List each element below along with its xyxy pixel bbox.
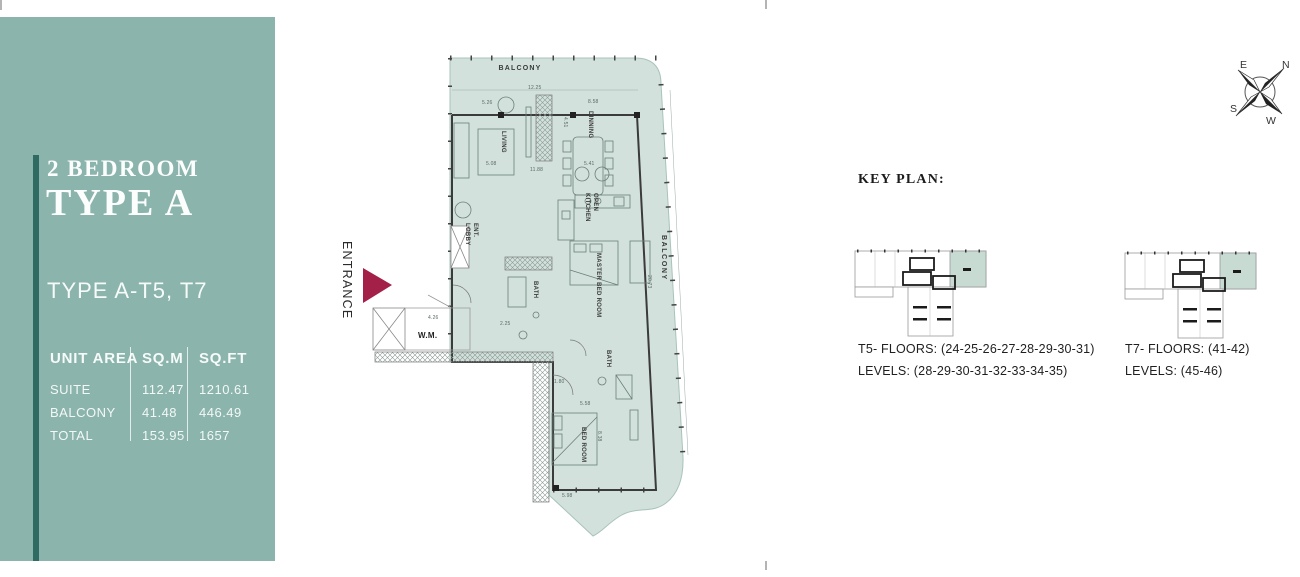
- dim-label: 4.26: [428, 315, 439, 321]
- row-total-sqft: 1657: [199, 428, 230, 443]
- room-label-ent-lobby: ENT. LOBBY: [463, 223, 478, 246]
- key-plan-heading: KEY PLAN:: [858, 172, 945, 188]
- room-label-bath-2: BATH: [604, 350, 612, 367]
- unit-title-line1: 2 BEDROOM: [47, 156, 199, 182]
- dim-label: 4.51: [562, 117, 568, 128]
- compass-s: S: [1230, 103, 1237, 115]
- dim-label: 12.25: [528, 85, 542, 91]
- compass-n: N: [1282, 59, 1290, 71]
- row-suite-sqm: 112.47: [142, 382, 184, 397]
- row-total-label: TOTAL: [50, 428, 93, 443]
- t5-floors-text: T5- FLOORS: (24-25-26-27-28-29-30-31): [858, 342, 1095, 356]
- balcony-top-label: BALCONY: [480, 65, 560, 74]
- room-label-living: LIVING: [499, 131, 507, 153]
- fold-mark-left: [0, 0, 2, 10]
- room-label-bath-1: BATH: [531, 281, 539, 298]
- sidebar-accent-stripe: [33, 155, 39, 561]
- fold-mark-bottom: [765, 561, 767, 570]
- dim-label: 8.58: [588, 99, 599, 105]
- compass-w: W: [1266, 115, 1276, 127]
- entrance-arrow: [363, 268, 392, 303]
- dim-label: 1.80: [554, 379, 565, 385]
- room-label-open-kitchen: OPEN KITCHEN: [583, 193, 598, 222]
- row-balcony-sqft: 446.49: [199, 405, 242, 420]
- row-balcony-sqm: 41.48: [142, 405, 177, 420]
- table-divider: [187, 347, 188, 441]
- t7-levels-text: LEVELS: (45-46): [1125, 364, 1223, 378]
- unit-title-line2: TYPE A: [46, 181, 194, 225]
- table-header-unit-area: UNIT AREA: [50, 350, 138, 367]
- table-divider: [130, 347, 131, 441]
- key-plan-t5-drawing: [853, 238, 993, 340]
- dim-label: 5.58: [580, 401, 591, 407]
- key-plan-t7: [1123, 240, 1263, 342]
- balcony-right-label: BALCONY: [658, 235, 667, 281]
- unit-subtitle: TYPE A-T5, T7: [47, 278, 208, 304]
- key-plan-t7-drawing: [1123, 240, 1263, 342]
- sidebar-panel: 2 BEDROOM TYPE A TYPE A-T5, T7 UNIT AREA…: [0, 17, 275, 561]
- dim-label: 20.73: [646, 275, 652, 289]
- row-balcony-label: BALCONY: [50, 405, 116, 420]
- dim-label: 5.08: [486, 161, 497, 167]
- room-label-bed-room: BED ROOM: [579, 427, 587, 462]
- dim-label: 5.26: [482, 100, 493, 106]
- dim-label: 11.88: [530, 167, 543, 173]
- dim-label: 5.41: [584, 161, 595, 167]
- table-header-sqm: SQ.M: [142, 350, 184, 367]
- t7-floors-text: T7- FLOORS: (41-42): [1125, 342, 1250, 356]
- row-total-sqm: 153.95: [142, 428, 185, 443]
- fold-mark-top: [765, 0, 767, 9]
- dim-label: 2.25: [500, 321, 511, 327]
- key-plan-t5: [853, 238, 993, 340]
- row-suite-sqft: 1210.61: [199, 382, 250, 397]
- dim-label: 5.98: [562, 493, 573, 499]
- table-header-sqft: SQ.FT: [199, 350, 247, 367]
- wm-label: W.M.: [418, 331, 437, 340]
- floor-plan-drawing: [330, 45, 702, 555]
- room-label-dinning: DINNING: [586, 111, 594, 138]
- entrance-label: ENTRANCE: [340, 241, 354, 319]
- compass-e: E: [1240, 59, 1247, 71]
- t5-levels-text: LEVELS: (28-29-30-31-32-33-34-35): [858, 364, 1068, 378]
- floor-plan: BALCONY LIVING DINNING OPEN KITCHEN ENT.…: [330, 45, 702, 555]
- dim-label: 8.38: [596, 431, 602, 442]
- room-label-master-bed-room: MASTER BED ROOM: [594, 253, 602, 318]
- row-suite-label: SUITE: [50, 382, 91, 397]
- compass-icon: E N S W: [1222, 55, 1298, 131]
